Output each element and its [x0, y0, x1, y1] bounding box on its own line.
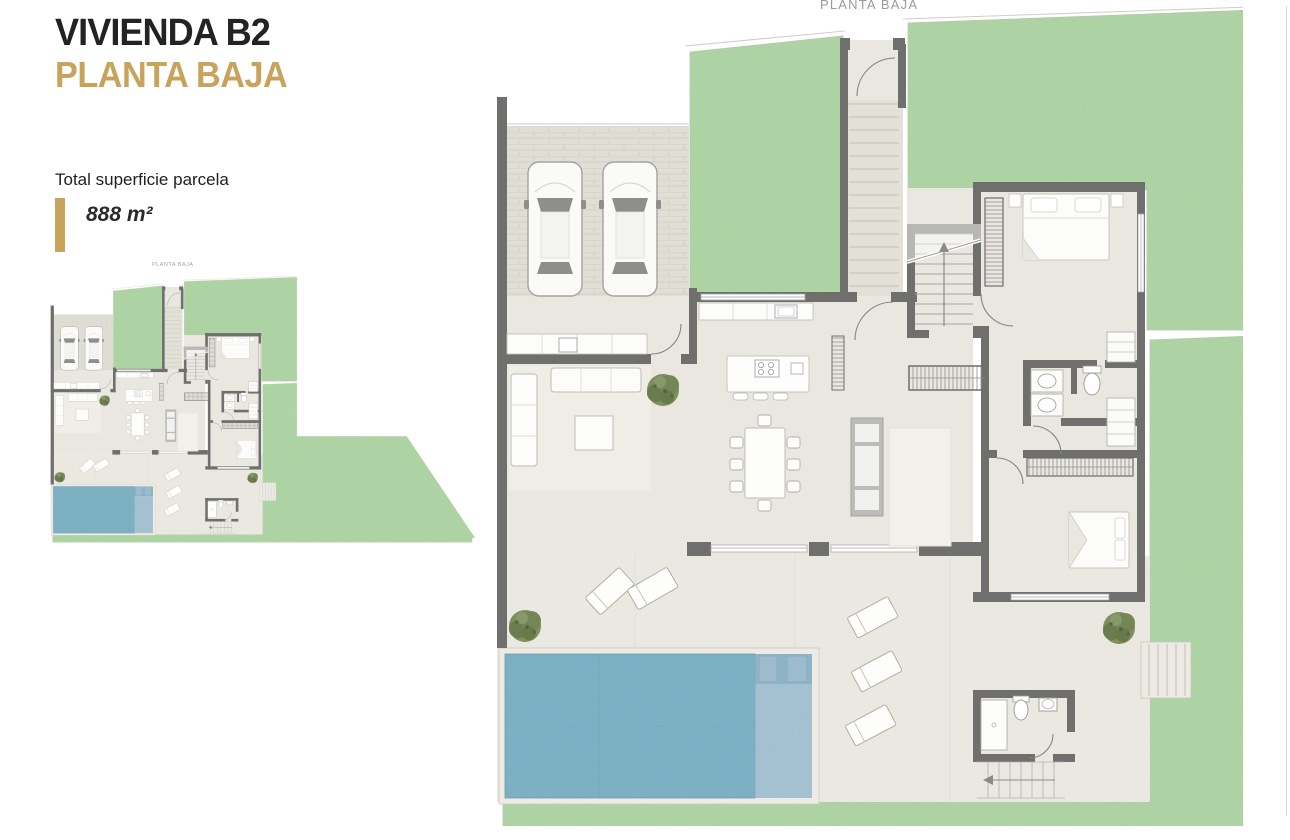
page-edge-line [1286, 6, 1287, 816]
main-plan-drawing [495, 0, 1243, 826]
accent-bar [55, 198, 65, 252]
page-subtitle: PLANTA BAJA [55, 56, 454, 94]
thumbnail-plan-label: PLANTA BAJA [152, 262, 193, 268]
page-title: VIVIENDA B2 [55, 14, 454, 54]
title-block: VIVIENDA B2 PLANTA BAJA [55, 14, 475, 94]
area-label: Total superficie parcela [55, 170, 229, 190]
thumbnail-plan: PLANTA BAJA [50, 262, 482, 546]
thumbnail-plan-drawing [50, 274, 482, 546]
area-value: 888 m² [86, 203, 153, 227]
main-plan [495, 0, 1243, 826]
main-plan-label: PLANTA BAJA [820, 0, 918, 12]
